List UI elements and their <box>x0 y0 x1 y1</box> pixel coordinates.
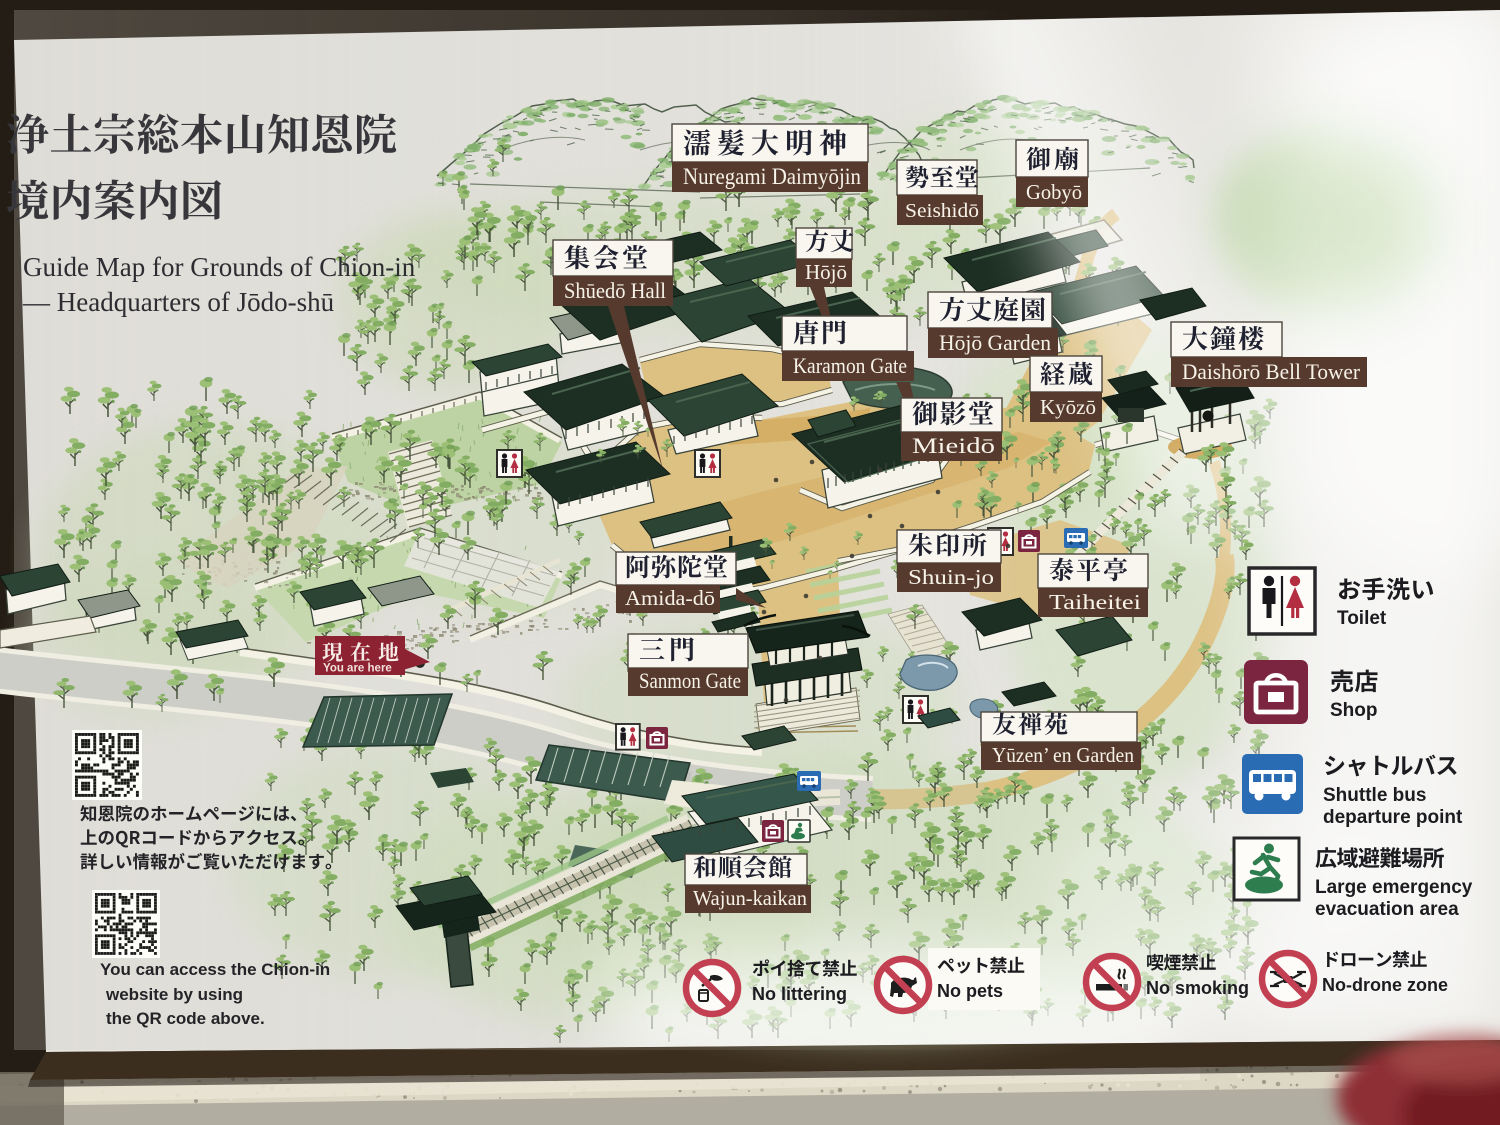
svg-text:Hōjō: Hōjō <box>805 260 847 284</box>
svg-text:Shop: Shop <box>1330 700 1378 721</box>
svg-text:Taiheitei: Taiheitei <box>1049 590 1141 614</box>
svg-text:Gobyō: Gobyō <box>1026 180 1082 204</box>
svg-text:departure point: departure point <box>1323 807 1463 828</box>
svg-text:Seishidō: Seishidō <box>905 200 979 222</box>
svg-text:website by using: website by using <box>105 985 243 1004</box>
svg-text:Mieidō: Mieidō <box>912 433 995 458</box>
svg-text:Shūedō Hall: Shūedō Hall <box>564 278 666 303</box>
svg-text:You can access the Chion-in: You can access the Chion-in <box>100 960 330 979</box>
svg-text:the QR code above.: the QR code above. <box>106 1009 265 1028</box>
svg-text:Large emergency: Large emergency <box>1315 877 1473 898</box>
svg-text:evacuation area: evacuation area <box>1315 899 1459 920</box>
svg-text:Hōjō Garden: Hōjō Garden <box>939 330 1051 355</box>
svg-text:No littering: No littering <box>752 984 847 1004</box>
svg-text:Karamon Gate: Karamon Gate <box>793 353 907 378</box>
svg-text:Nuregami Daimyōjin: Nuregami Daimyōjin <box>683 164 861 189</box>
svg-text:Yūzen’ en Garden: Yūzen’ en Garden <box>992 743 1134 767</box>
svg-text:Guide Map for Grounds of Chion: Guide Map for Grounds of Chion-in <box>23 252 416 282</box>
svg-text:No-drone zone: No-drone zone <box>1322 975 1448 995</box>
svg-text:Shuin-jo: Shuin-jo <box>908 565 994 589</box>
svg-text:Daishōrō Bell Tower: Daishōrō Bell Tower <box>1182 359 1361 384</box>
svg-text:Amida-dō: Amida-dō <box>625 586 715 610</box>
svg-text:— Headquarters of Jōdo-shū: — Headquarters of Jōdo-shū <box>22 287 335 317</box>
svg-text:Wajun-kaikan: Wajun-kaikan <box>693 886 807 910</box>
svg-text:Shuttle bus: Shuttle bus <box>1323 785 1426 806</box>
svg-text:Sanmon Gate: Sanmon Gate <box>639 668 741 693</box>
svg-text:No smoking: No smoking <box>1146 978 1249 998</box>
svg-text:Kyōzō: Kyōzō <box>1040 395 1096 419</box>
svg-text:Toilet: Toilet <box>1337 608 1387 629</box>
svg-text:No pets: No pets <box>937 981 1003 1001</box>
svg-text:You are here: You are here <box>323 663 392 675</box>
